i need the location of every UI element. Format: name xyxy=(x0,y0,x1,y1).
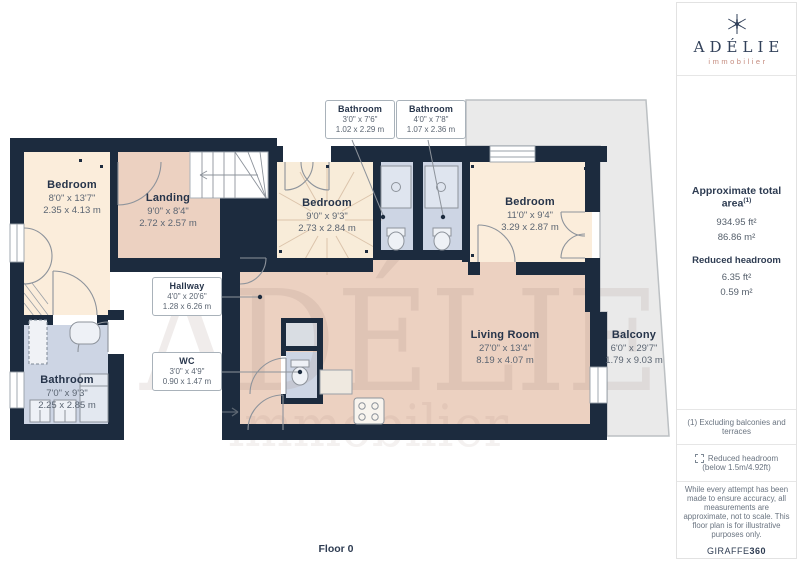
toilet-bathroom-top2 xyxy=(433,228,451,250)
toilet-bathroom-top1 xyxy=(387,228,405,250)
disclaimer-text: While every attempt has been made to ens… xyxy=(682,485,791,539)
floorplan-drawing: ADÉLIE immobilier xyxy=(0,0,672,566)
disclaimer-section: While every attempt has been made to ens… xyxy=(677,482,796,558)
footnote-section: (1) Excluding balconies and terraces xyxy=(677,410,796,445)
bedroom-mid-area xyxy=(277,162,373,258)
legend-label: Reduced headroom xyxy=(708,454,778,463)
sidebar: ADÉLIE immobilier Approximate total area… xyxy=(676,2,797,559)
floorplan-page: ADÉLIE immobilier xyxy=(0,0,800,566)
brand-mark: GIRAFFE360 xyxy=(707,546,766,556)
total-area-title: Approximate total area(1) xyxy=(677,185,796,210)
shower-bathroom-top1 xyxy=(381,166,411,208)
bedroom-left-area xyxy=(24,152,110,315)
window-left-bathroom xyxy=(10,372,24,408)
window-left-bedroom xyxy=(10,224,24,262)
shower-bathroom-lower xyxy=(80,374,108,422)
legend-section: Reduced headroom (below 1.5m/4.92ft) xyxy=(677,445,796,482)
sink-bathroom-lower xyxy=(70,322,100,344)
area-summary-section: Approximate total area(1) 934.95 ft² 86.… xyxy=(677,76,796,410)
reduced-headroom-legend-icon xyxy=(695,454,704,463)
floor-label: Floor 0 xyxy=(0,543,672,555)
snowflake-logo-icon xyxy=(726,13,748,35)
stairs xyxy=(190,152,268,198)
cabinet-bathroom-lower xyxy=(29,320,47,364)
window-bedroom-right-top xyxy=(490,146,535,162)
total-area-footnote-marker: (1) xyxy=(743,197,751,204)
logo-subtitle: immobilier xyxy=(705,57,767,66)
logo-name: ADÉLIE xyxy=(689,38,785,56)
total-area-ft: 934.95 ft² xyxy=(716,217,756,228)
window-living-right xyxy=(590,367,607,403)
reduced-headroom-m: 0.59 m² xyxy=(720,287,752,298)
logo-section: ADÉLIE immobilier xyxy=(677,3,796,76)
reduced-headroom-ft: 6.35 ft² xyxy=(722,272,752,283)
kitchen-counter xyxy=(320,370,352,394)
kitchen-stove xyxy=(354,398,384,424)
shower-bathroom-top2 xyxy=(425,166,458,208)
reduced-headroom-title: Reduced headroom xyxy=(692,255,781,266)
total-area-m: 86.86 m² xyxy=(718,232,756,243)
legend-sublabel: (below 1.5m/4.92ft) xyxy=(702,463,770,472)
